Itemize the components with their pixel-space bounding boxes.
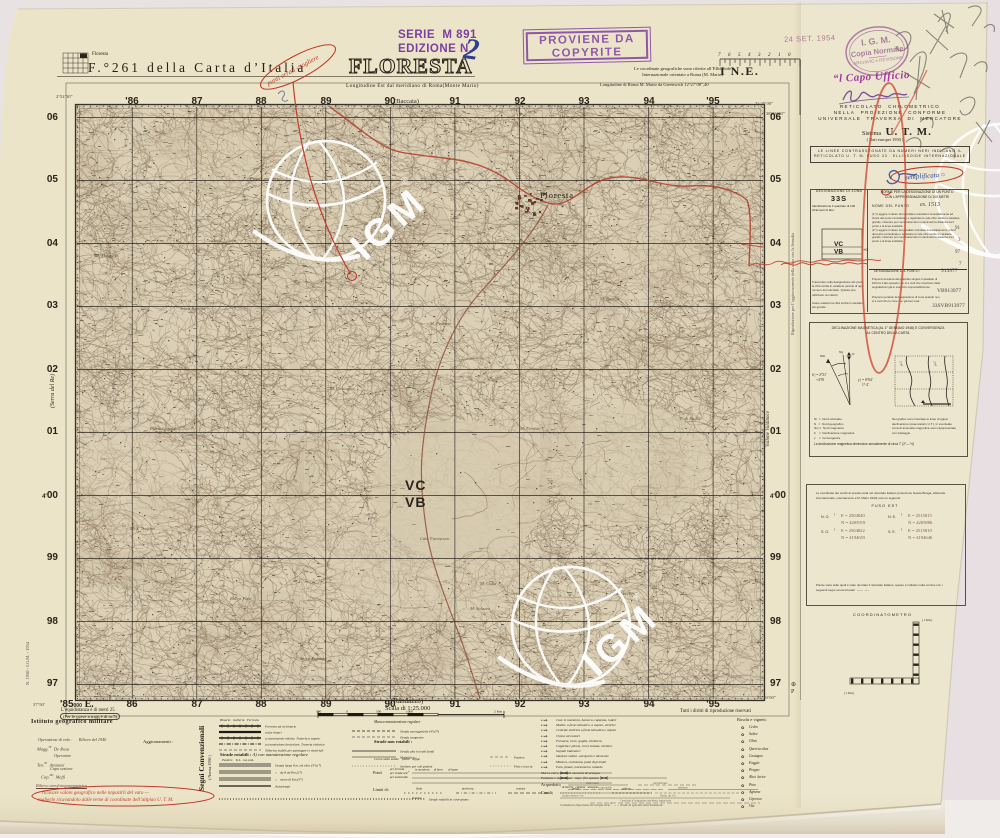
svg-text:» da 8 ad Km.(2°): » da 8 ad Km.(2°) bbox=[275, 771, 303, 775]
svg-text:737: 737 bbox=[458, 266, 463, 269]
svg-text:5: 5 bbox=[738, 53, 741, 58]
svg-text:1499: 1499 bbox=[260, 298, 266, 301]
svg-text:1181: 1181 bbox=[357, 667, 363, 670]
svg-text:1197: 1197 bbox=[711, 645, 717, 648]
svg-text:1639: 1639 bbox=[305, 452, 311, 455]
svg-text:7: 7 bbox=[718, 53, 721, 58]
svg-text:Autostrada: Autostrada bbox=[274, 785, 290, 789]
svg-text:1000: 1000 bbox=[406, 710, 413, 714]
svg-text:1047: 1047 bbox=[117, 307, 123, 310]
svg-text:M. Cerasa: M. Cerasa bbox=[519, 426, 540, 431]
svg-text:500: 500 bbox=[376, 710, 382, 714]
svg-text:1589: 1589 bbox=[421, 188, 427, 191]
svg-text:Piano Geraci: Piano Geraci bbox=[149, 426, 176, 431]
svg-text:1278: 1278 bbox=[489, 296, 495, 299]
svg-text:» meno di Km.(3°): » meno di Km.(3°) bbox=[275, 778, 304, 782]
svg-text:773: 773 bbox=[314, 486, 319, 489]
svg-text:1601: 1601 bbox=[603, 563, 609, 566]
svg-text:VB: VB bbox=[834, 249, 843, 256]
svg-text:1243: 1243 bbox=[459, 184, 465, 187]
svg-text:834: 834 bbox=[260, 608, 265, 611]
svg-text:6: 6 bbox=[728, 53, 731, 58]
svg-text:1442: 1442 bbox=[593, 584, 599, 587]
svg-text:2°50′: 2°50′ bbox=[932, 361, 937, 368]
svg-text:956: 956 bbox=[102, 525, 107, 528]
svg-text:Ng: Ng bbox=[839, 350, 843, 354]
svg-text:Stato: Stato bbox=[416, 787, 423, 791]
svg-text:1: 1 bbox=[778, 53, 781, 58]
svg-text:M. S. Trofimo: M. S. Trofimo bbox=[129, 526, 156, 531]
svg-text:2°30′: 2°30′ bbox=[898, 361, 903, 368]
svg-text:1427: 1427 bbox=[482, 622, 488, 625]
svg-text:1644: 1644 bbox=[101, 458, 107, 461]
svg-text:Nm: Nm bbox=[820, 354, 825, 358]
svg-text:944: 944 bbox=[191, 273, 196, 276]
svg-text:Strada larga 8 m. od oltre (3: Strada larga 8 m. od oltre (3°a1°) bbox=[275, 764, 322, 768]
svg-text:1286: 1286 bbox=[724, 423, 730, 426]
svg-text:M. Castagna: M. Castagna bbox=[329, 386, 354, 391]
svg-text:1172: 1172 bbox=[84, 654, 90, 657]
svg-text:0: 0 bbox=[788, 53, 791, 58]
svg-text:765: 765 bbox=[593, 260, 598, 263]
svg-text:778: 778 bbox=[245, 236, 250, 239]
svg-text:δ | = 2°51′: δ | = 2°51′ bbox=[812, 373, 827, 377]
svg-text:Rocca Pizzi: Rocca Pizzi bbox=[229, 596, 252, 601]
svg-text:2: 2 bbox=[768, 53, 771, 58]
svg-text:1569: 1569 bbox=[219, 585, 225, 588]
svg-text:Pastiere: Pastiere bbox=[513, 756, 525, 760]
svg-text:M. Margiato: M. Margiato bbox=[94, 253, 119, 258]
svg-text:0: 0 bbox=[346, 710, 348, 714]
svg-text:1275: 1275 bbox=[213, 568, 219, 571]
svg-text:1°-2′: 1°-2′ bbox=[862, 383, 869, 387]
svg-text:923: 923 bbox=[122, 525, 127, 528]
svg-text:754: 754 bbox=[245, 438, 250, 441]
svg-text:1360: 1360 bbox=[242, 199, 248, 202]
svg-text:C. Petrosa: C. Petrosa bbox=[560, 341, 580, 346]
svg-text:817: 817 bbox=[153, 277, 158, 280]
svg-text:Cda. Favoscuro: Cda. Favoscuro bbox=[420, 536, 450, 541]
svg-text:1407: 1407 bbox=[444, 230, 450, 233]
svg-text:1167: 1167 bbox=[671, 170, 677, 173]
svg-text:1497: 1497 bbox=[100, 297, 106, 300]
svg-text:765: 765 bbox=[726, 469, 731, 472]
svg-text:1646: 1646 bbox=[156, 554, 162, 557]
svg-text:1279: 1279 bbox=[197, 389, 203, 392]
svg-text:M. Colla: M. Colla bbox=[479, 581, 497, 586]
svg-text:sotterraneo: sotterraneo bbox=[586, 782, 599, 785]
svg-text:1201: 1201 bbox=[556, 612, 562, 615]
svg-text:876: 876 bbox=[217, 543, 222, 546]
svg-text:F. di Ruilla: F. di Ruilla bbox=[679, 416, 701, 421]
svg-text:909: 909 bbox=[588, 503, 593, 506]
svg-text:1113: 1113 bbox=[461, 258, 467, 261]
svg-text:M. Pomiere: M. Pomiere bbox=[429, 321, 452, 326]
svg-text:780: 780 bbox=[459, 376, 464, 379]
svg-text:1110: 1110 bbox=[122, 605, 128, 608]
svg-text:702: 702 bbox=[380, 687, 385, 690]
svg-text:VC: VC bbox=[834, 241, 843, 248]
svg-text:1629: 1629 bbox=[218, 348, 224, 351]
svg-text:763: 763 bbox=[687, 176, 692, 179]
svg-text:( 1 Km.): ( 1 Km.) bbox=[844, 691, 854, 695]
svg-text:1270: 1270 bbox=[397, 506, 403, 509]
svg-text:500: 500 bbox=[316, 710, 322, 714]
svg-text:Navig. da 3 m.: Navig. da 3 m. bbox=[659, 795, 677, 798]
svg-text:+4′′B: +4′′B bbox=[816, 378, 824, 382]
svg-text:1327: 1327 bbox=[724, 673, 730, 676]
svg-text:2 Km: 2 Km bbox=[494, 710, 502, 714]
svg-text:1075: 1075 bbox=[671, 377, 677, 380]
svg-text:1493: 1493 bbox=[146, 166, 152, 169]
svg-text:1458: 1458 bbox=[697, 300, 703, 303]
svg-text:M. Solazzo: M. Solazzo bbox=[469, 606, 491, 611]
svg-text:1274: 1274 bbox=[113, 400, 119, 403]
svg-text:992: 992 bbox=[625, 546, 630, 549]
svg-text:921: 921 bbox=[409, 113, 414, 116]
svg-text:998: 998 bbox=[643, 350, 648, 353]
svg-text:3: 3 bbox=[758, 53, 761, 58]
svg-text:1135: 1135 bbox=[166, 145, 172, 148]
svg-text:846: 846 bbox=[492, 380, 497, 383]
svg-text:1621: 1621 bbox=[263, 665, 269, 668]
svg-text:830: 830 bbox=[352, 461, 357, 464]
svg-text:Termine: Termine bbox=[412, 796, 422, 800]
svg-text:883: 883 bbox=[673, 496, 678, 499]
svg-text:γ | = 0°04′: γ | = 0°04′ bbox=[858, 378, 873, 382]
svg-text:M. Basilio: M. Basilio bbox=[599, 296, 620, 301]
svg-text:comune: comune bbox=[516, 787, 526, 791]
svg-text:1366: 1366 bbox=[706, 685, 712, 688]
svg-text:1594: 1594 bbox=[311, 340, 317, 343]
svg-text:Larghi almeno 3 m.: Larghi almeno 3 m. bbox=[561, 795, 584, 798]
svg-text:1159: 1159 bbox=[227, 365, 233, 368]
svg-text:N: N bbox=[852, 352, 855, 356]
svg-text:1314: 1314 bbox=[235, 632, 241, 635]
svg-text:ricavare valore geografico nel: ricavare valore geografico nelle impazir… bbox=[42, 791, 150, 796]
svg-text:in muratura di ferro: in muratura di ferro di legno bbox=[415, 768, 458, 772]
svg-text:sopraelevato: sopraelevato bbox=[653, 782, 668, 785]
svg-text:1028: 1028 bbox=[389, 372, 395, 375]
svg-text:1376: 1376 bbox=[495, 652, 501, 655]
svg-text:provincia: provincia bbox=[461, 787, 474, 791]
svg-text:4: 4 bbox=[748, 53, 751, 58]
svg-text:( 1 Km.): ( 1 Km.) bbox=[922, 618, 932, 622]
svg-text:toglierlo ricavandolo dalle te: toglierlo ricavandolo dalle terne di coo… bbox=[38, 798, 174, 803]
svg-text:1326: 1326 bbox=[128, 254, 134, 257]
